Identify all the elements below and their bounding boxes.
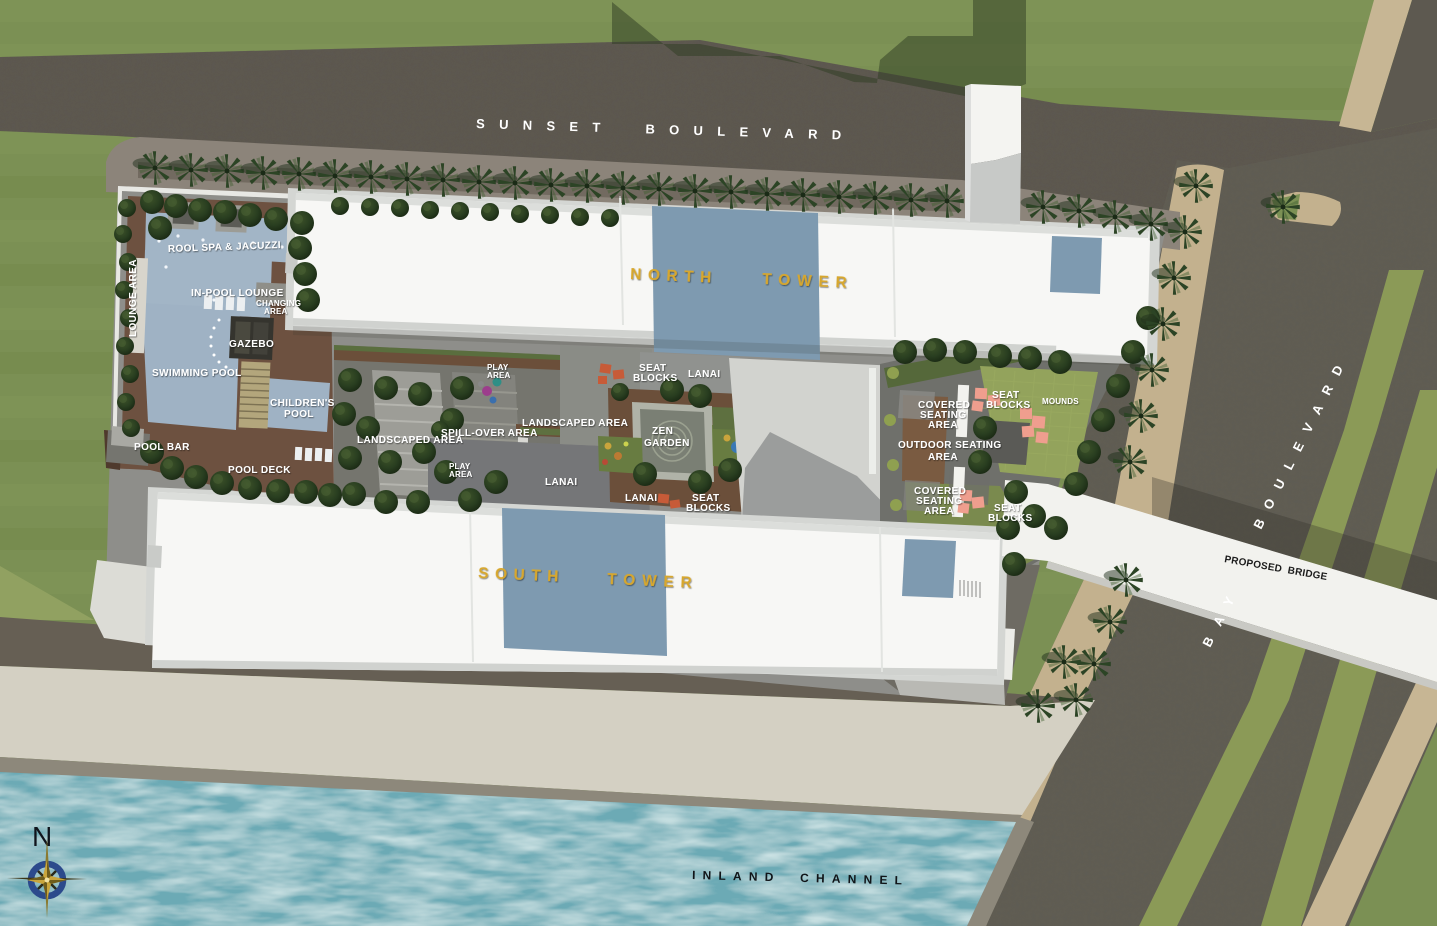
svg-text:LOUNGE AREA: LOUNGE AREA	[128, 259, 139, 337]
svg-text:IN-POOL LOUNGE: IN-POOL LOUNGE	[191, 288, 284, 299]
svg-text:AREA: AREA	[928, 420, 958, 431]
svg-text:LANDSCAPED AREA: LANDSCAPED AREA	[522, 418, 628, 429]
svg-text:LANAI: LANAI	[625, 493, 658, 504]
svg-text:BLOCKS: BLOCKS	[988, 513, 1033, 524]
svg-text:GAZEBO: GAZEBO	[229, 339, 274, 350]
svg-text:CHILDREN'S: CHILDREN'S	[270, 398, 335, 409]
svg-text:AREA: AREA	[924, 506, 954, 517]
svg-text:AREA: AREA	[449, 470, 472, 479]
svg-text:SWIMMING POOL: SWIMMING POOL	[152, 368, 242, 379]
svg-text:LANAI: LANAI	[688, 369, 721, 380]
svg-text:AREA: AREA	[264, 307, 287, 316]
svg-text:N: N	[32, 821, 52, 852]
svg-text:GARDEN: GARDEN	[644, 438, 690, 449]
svg-text:POOL BAR: POOL BAR	[134, 442, 190, 453]
svg-text:ZEN: ZEN	[652, 426, 673, 437]
svg-text:BLOCKS: BLOCKS	[986, 400, 1031, 411]
svg-text:LANAI: LANAI	[545, 477, 578, 488]
svg-text:AREA: AREA	[928, 452, 958, 463]
svg-text:BLOCKS: BLOCKS	[633, 373, 678, 384]
svg-text:POOL: POOL	[284, 409, 314, 420]
svg-text:SPILL-OVER AREA: SPILL-OVER AREA	[441, 428, 538, 439]
svg-text:BLOCKS: BLOCKS	[686, 503, 731, 514]
svg-text:AREA: AREA	[487, 371, 510, 380]
svg-text:OUTDOOR SEATING: OUTDOOR SEATING	[898, 440, 1002, 451]
svg-text:MOUNDS: MOUNDS	[1042, 397, 1079, 406]
svg-text:POOL DECK: POOL DECK	[228, 465, 291, 476]
